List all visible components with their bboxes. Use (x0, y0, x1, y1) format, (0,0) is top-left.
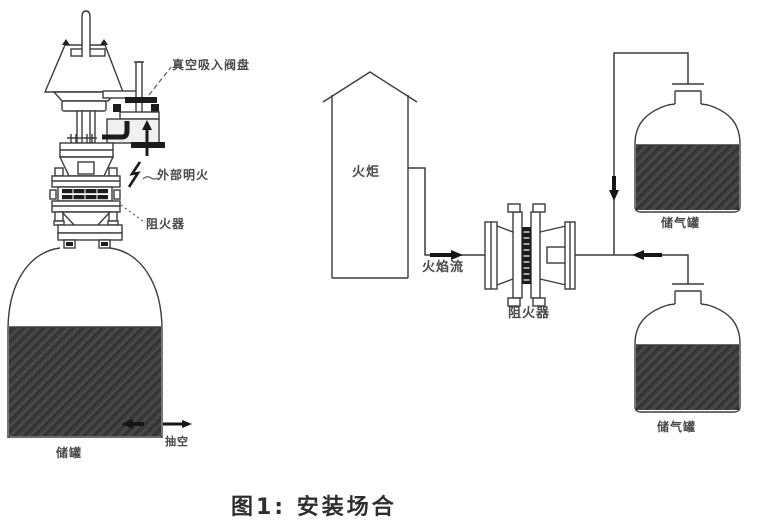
label-flame-arrester-left: 阻火器 (146, 218, 185, 231)
inline-flame-arrester-drawing (485, 204, 575, 306)
label-flare: 火炬 (352, 166, 380, 180)
flame-arrester-left-drawing (50, 134, 122, 248)
vacuum-valve-disc-shape (131, 142, 165, 148)
label-storage-tank: 储罐 (56, 447, 82, 460)
figure-installation-diagram: 真空吸入阀盘 外部明火 阻火器 储罐 抽空 火炬 火焰流 阻火器 储气罐 储气罐… (0, 0, 777, 528)
flare-roof (323, 72, 417, 102)
tank-liquid-fill (9, 327, 161, 436)
breather-valve-drawing (45, 11, 165, 156)
storage-tank-drawing (8, 248, 162, 438)
pipe-flare-to-arrester (408, 168, 485, 255)
down-flow-arrow-icon (609, 190, 619, 201)
vacuum-inlet-pipe (136, 62, 142, 115)
figure-caption: 图1: 安装场合 (231, 489, 397, 521)
valve-stem (82, 11, 90, 57)
label-flame-flow: 火焰流 (422, 261, 464, 275)
pipe-arrester-to-bottom-tank (575, 255, 688, 284)
label-gas-tank-bottom: 储气罐 (657, 421, 696, 434)
label-pump-out: 抽空 (165, 436, 189, 448)
flow-arrow-icons (430, 176, 662, 260)
label-vacuum-valve-disc: 真空吸入阀盘 (172, 59, 250, 72)
lightning-icon (129, 162, 140, 187)
leader-external-flame (143, 177, 158, 179)
leader-arrester-left (121, 205, 144, 222)
gas-tank-bottom-drawing (635, 284, 740, 412)
gas-tank-liquid-fill (636, 145, 739, 210)
flame-flow-arrow-icon (451, 250, 463, 260)
label-external-open-flame: 外部明火 (157, 169, 209, 182)
left-flow-arrow-icon (632, 250, 644, 260)
gas-tank-top-drawing (635, 84, 740, 212)
leader-vacuum-valve (149, 67, 171, 95)
label-flame-arrester-right: 阻火器 (508, 307, 550, 321)
label-gas-tank-top: 储气罐 (661, 217, 700, 230)
diagram-artwork (0, 0, 777, 528)
